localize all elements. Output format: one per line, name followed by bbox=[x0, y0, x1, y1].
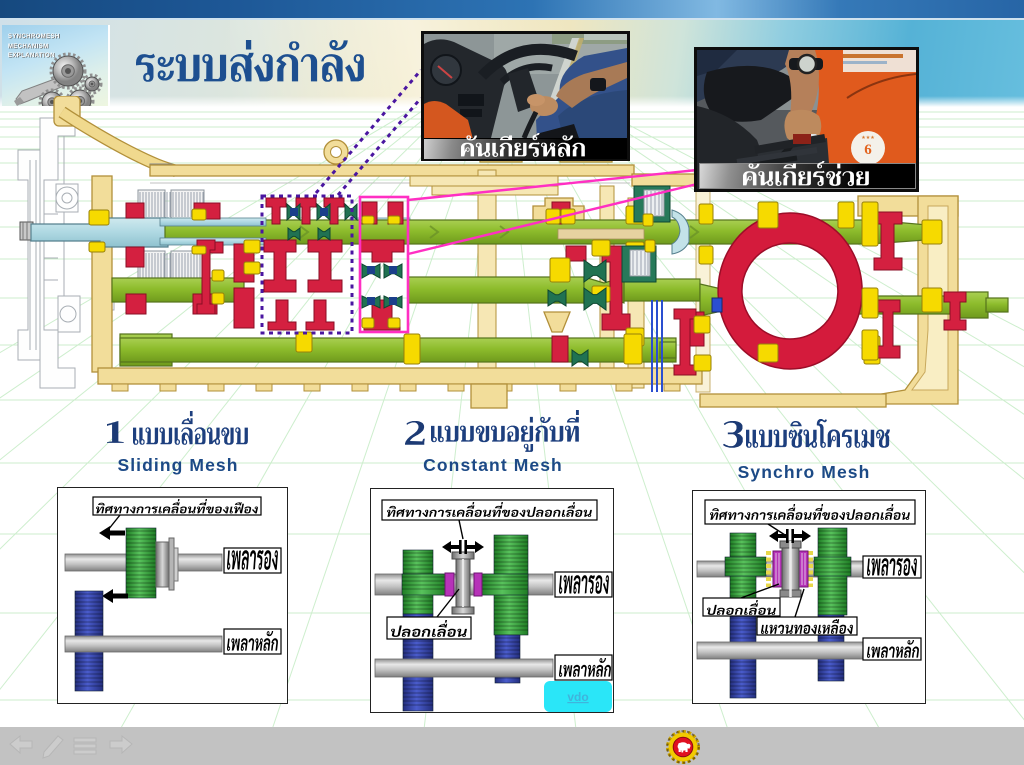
svg-text:vdo: vdo bbox=[567, 690, 588, 704]
svg-text:6: 6 bbox=[864, 142, 872, 158]
svg-text:★★★: ★★★ bbox=[861, 135, 875, 141]
